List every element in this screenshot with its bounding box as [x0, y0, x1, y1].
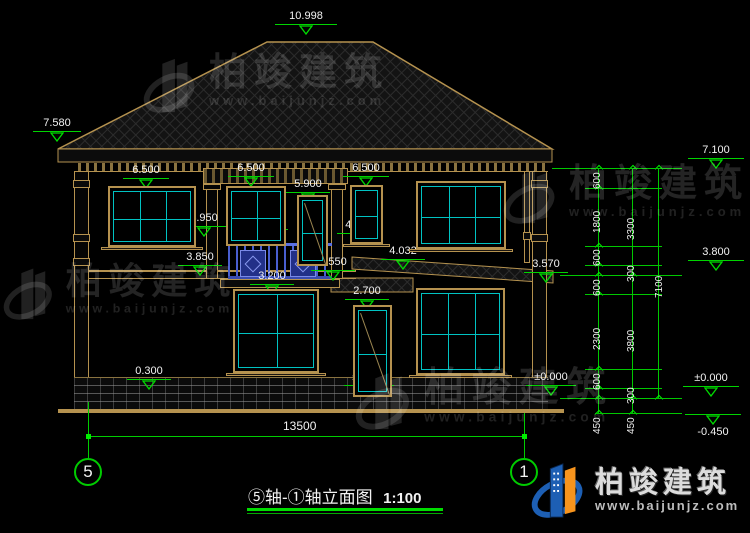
window-transom — [303, 233, 322, 234]
door — [297, 195, 328, 266]
watermark-brand: 柏竣建筑 — [66, 262, 237, 302]
level-value: ±0.000 — [526, 371, 576, 383]
window-mullion — [277, 295, 278, 367]
level-value: 5.900 — [286, 178, 330, 190]
door — [353, 305, 392, 397]
window-mullion — [140, 192, 141, 241]
dim-chain-value: 600 — [592, 249, 603, 266]
level-value: 3.570 — [524, 258, 568, 270]
window — [350, 185, 383, 244]
window-transom — [359, 354, 386, 355]
dim-extension-line — [585, 369, 662, 370]
level-triangle-icon — [142, 380, 156, 390]
window-sill — [409, 249, 513, 252]
level-triangle-icon — [709, 159, 723, 169]
dim-chain-value: 7100 — [654, 276, 665, 298]
window-mullion — [475, 294, 476, 369]
window-glazing — [113, 191, 191, 242]
level-triangle-icon — [326, 271, 340, 281]
annotation-layer: 10.9987.5806.5006.5006.5005.9004.7004.95… — [0, 0, 750, 533]
dim-extension-line — [560, 398, 682, 399]
window-mullion — [475, 187, 476, 243]
window-mullion — [449, 187, 450, 243]
watermark-brand: 柏竣建筑 — [209, 52, 389, 94]
watermark-url: www.baijunjz.com — [66, 302, 237, 315]
window — [416, 181, 506, 249]
watermark-url: www.baijunjz.com — [209, 94, 389, 108]
window — [416, 288, 505, 375]
level-value: 3.850 — [178, 251, 222, 263]
dim-tick — [629, 165, 637, 173]
dim-tick — [655, 165, 663, 173]
dim-chain-value: 3300 — [626, 218, 637, 240]
dim-extension-line — [552, 168, 682, 169]
window-glazing — [421, 186, 501, 244]
dim-chain-value: 3800 — [626, 330, 637, 352]
window-glazing — [421, 293, 500, 370]
window-transom — [422, 217, 500, 218]
dim-tick — [595, 395, 603, 403]
window-glazing — [238, 294, 314, 368]
dim-chain-value: 600 — [592, 279, 603, 296]
level-value: 6.500 — [123, 164, 169, 176]
level-triangle-icon — [299, 25, 313, 35]
level-value: 0.300 — [127, 365, 171, 377]
level-value: 6.500 — [343, 162, 389, 174]
window — [226, 186, 286, 246]
watermark-building-icon — [143, 52, 201, 118]
window-transom — [114, 219, 190, 220]
dim-chain-value: 300 — [626, 265, 637, 282]
window-glazing — [302, 200, 323, 261]
window-mullion — [166, 192, 167, 241]
dim-extension-line — [585, 246, 662, 247]
level-value: -0.450 — [685, 426, 741, 438]
watermark-building-icon — [3, 262, 58, 325]
level-value: 10.998 — [275, 10, 337, 22]
dim-chain-line — [632, 168, 633, 413]
window-sill — [409, 375, 512, 378]
window-glazing — [358, 310, 387, 392]
level-triangle-icon — [50, 132, 64, 142]
window-transom — [422, 334, 499, 335]
window — [233, 289, 319, 373]
level-triangle-icon — [706, 415, 720, 425]
dim-chain-value: 600 — [592, 172, 603, 189]
level-value: 3.200 — [250, 270, 294, 282]
window-mullion — [448, 294, 449, 369]
window-glazing — [231, 191, 281, 241]
level-value: 7.580 — [33, 117, 81, 129]
level-triangle-icon — [396, 260, 410, 270]
level-triangle-icon — [197, 227, 211, 237]
dim-chain-value: 450 — [626, 417, 637, 434]
level-value: 3.800 — [688, 246, 744, 258]
watermark-building-icon — [503, 163, 561, 229]
window-mullion — [257, 192, 258, 240]
dim-chain-value: 300 — [626, 387, 637, 404]
level-value: 2.700 — [345, 285, 389, 297]
dim-chain-value: 600 — [592, 373, 603, 390]
dim-chain-value: 450 — [592, 417, 603, 434]
watermark-url: www.baijunjz.com — [424, 410, 613, 425]
cad-elevation-drawing: 13500 5 1 ⑤轴-①轴立面图 1:100 柏竣建筑 www.baijun… — [0, 0, 750, 533]
level-triangle-icon — [704, 387, 718, 397]
dim-chain-value: 1800 — [592, 211, 603, 233]
dim-extension-line — [595, 413, 682, 414]
window-sill — [226, 373, 326, 376]
window-sill — [101, 247, 203, 250]
dim-tick — [655, 395, 663, 403]
window-sill — [343, 244, 390, 247]
window — [108, 186, 196, 247]
level-value: 7.100 — [688, 144, 744, 156]
watermark: 柏竣建筑www.baijunjz.com — [143, 52, 389, 118]
level-value: 6.500 — [228, 162, 274, 174]
window-transom — [239, 333, 313, 334]
level-triangle-icon — [709, 261, 723, 271]
level-triangle-icon — [193, 266, 207, 276]
level-triangle-icon — [544, 386, 558, 396]
dim-chain-value: 2300 — [592, 328, 603, 350]
window-transom — [356, 216, 377, 217]
window-transom — [232, 218, 280, 219]
level-value: ±0.000 — [683, 372, 739, 384]
level-triangle-icon — [539, 273, 553, 283]
window-glazing — [355, 190, 378, 239]
